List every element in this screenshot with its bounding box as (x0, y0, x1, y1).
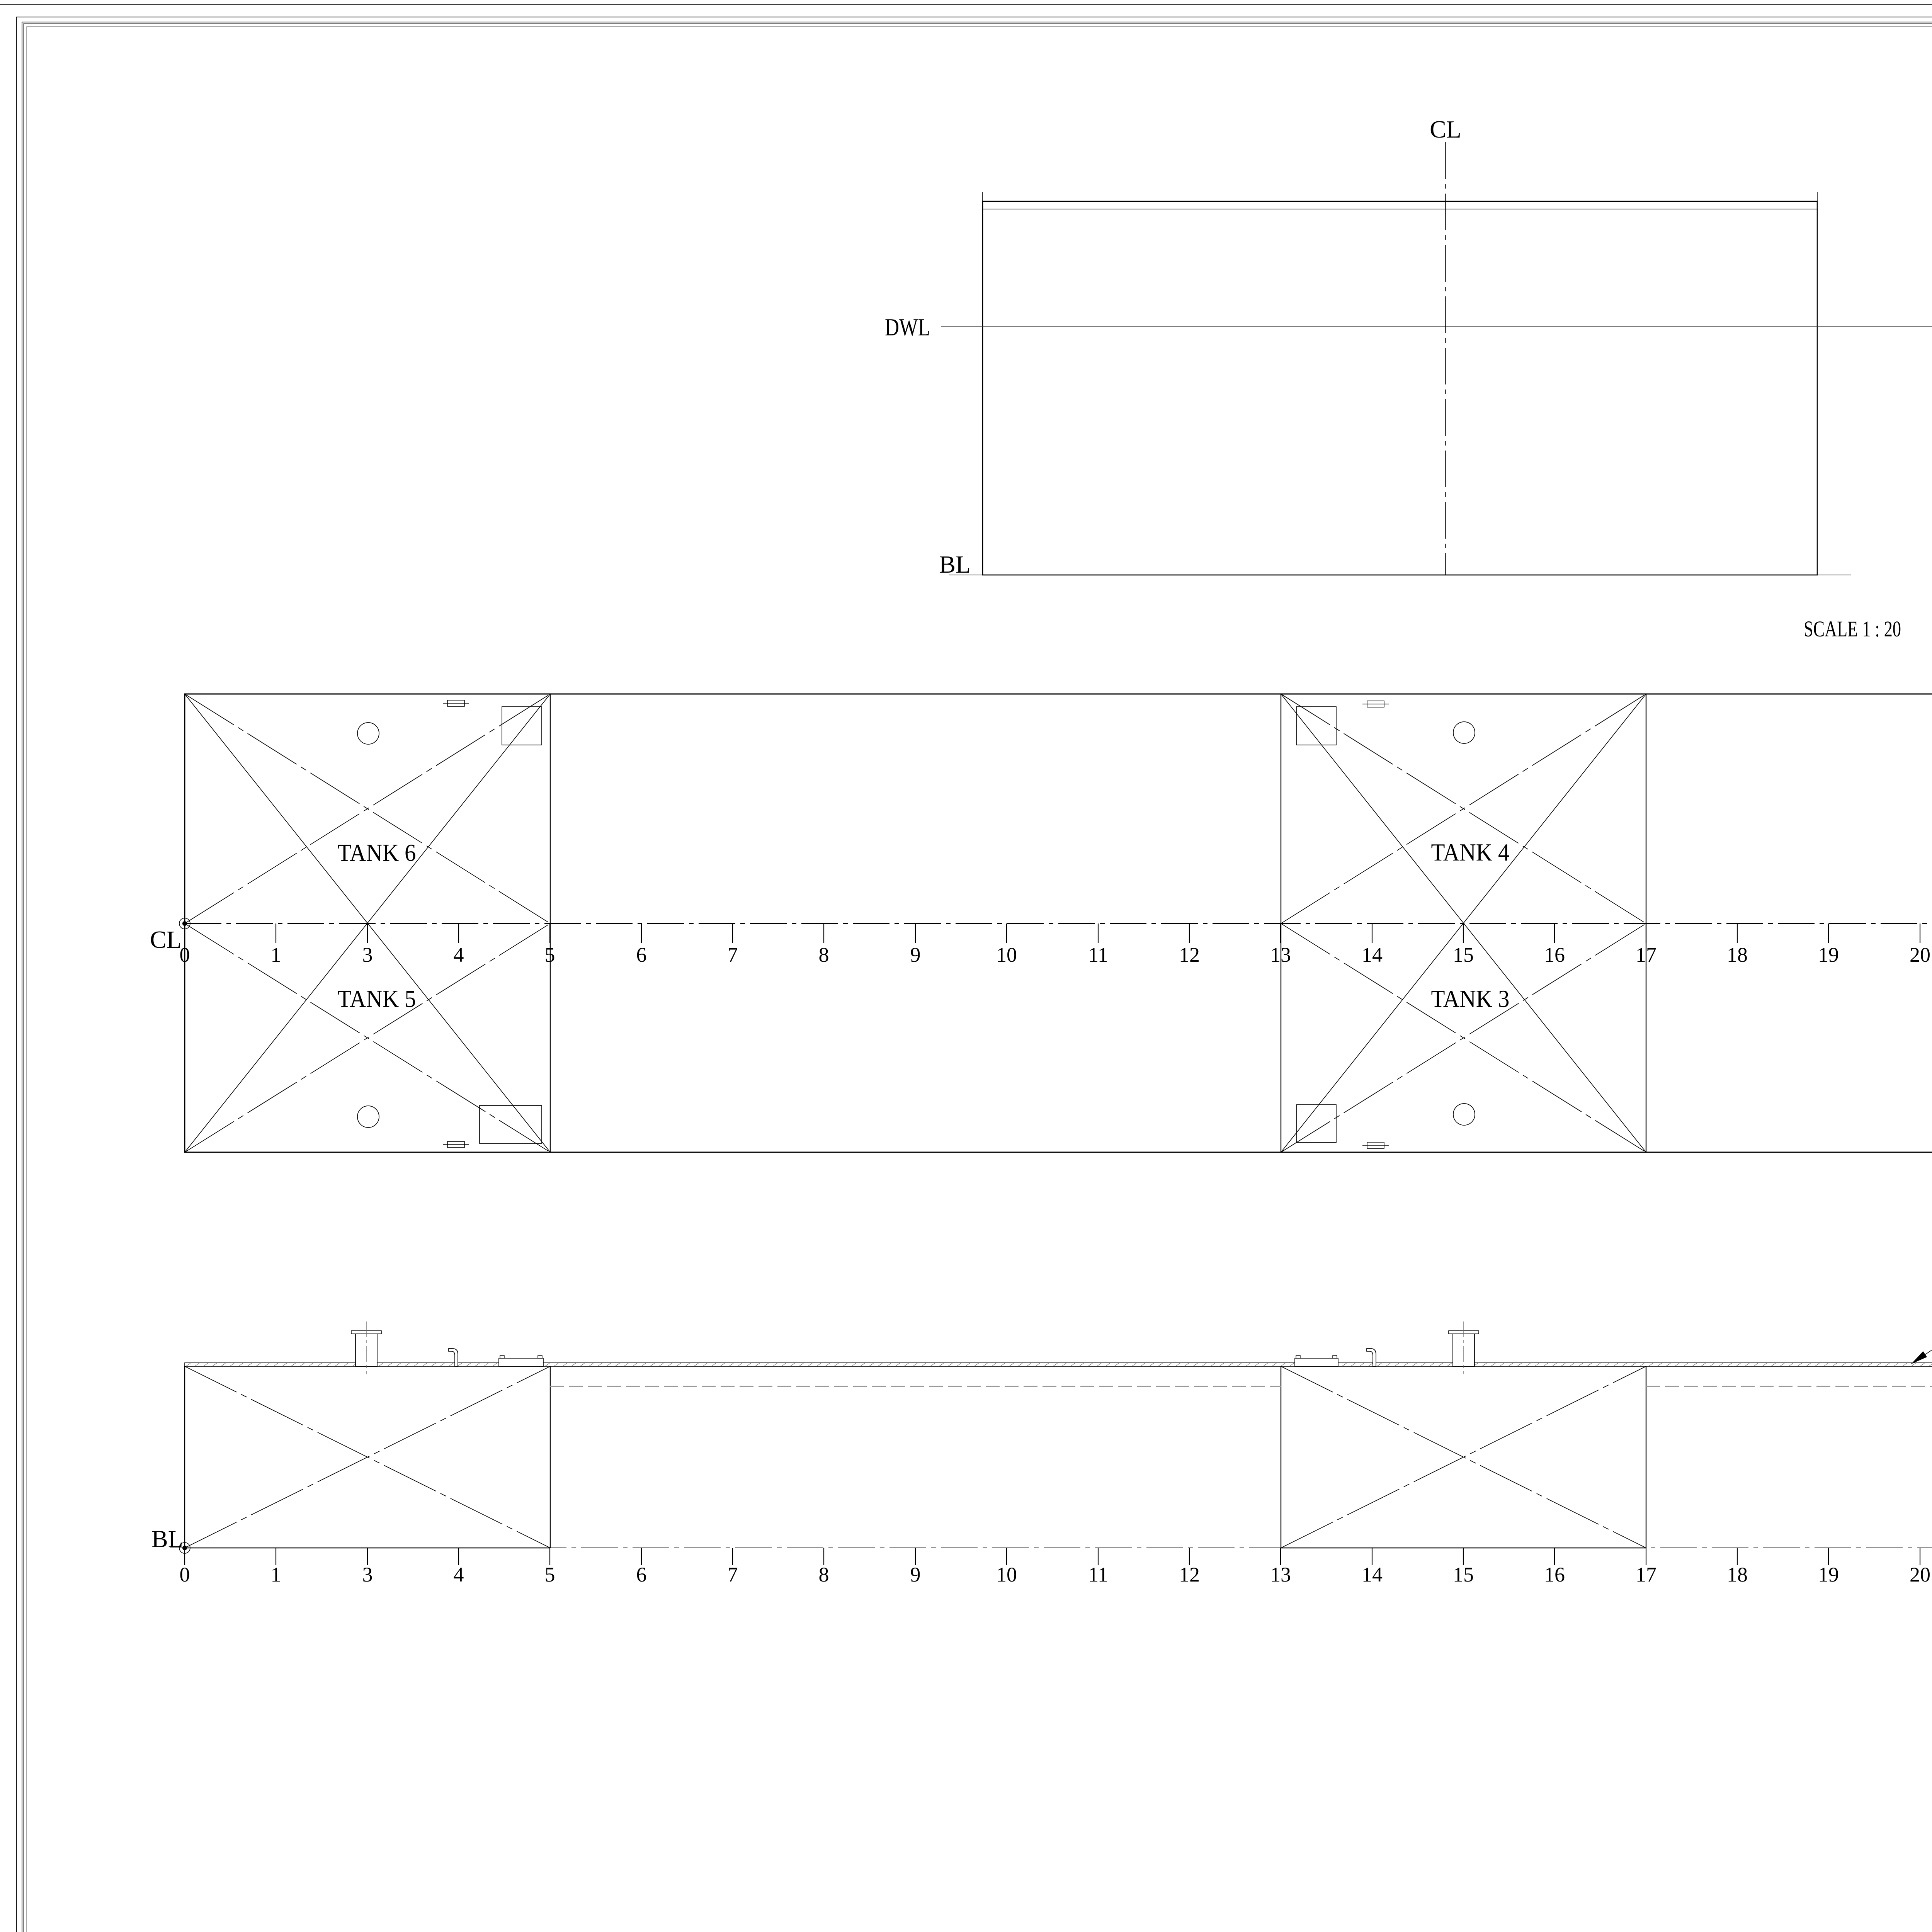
svg-text:20: 20 (1910, 943, 1930, 966)
svg-text:BL: BL (939, 551, 971, 578)
svg-text:18: 18 (1727, 1563, 1748, 1586)
svg-text:8: 8 (819, 943, 829, 966)
svg-text:1: 1 (271, 1563, 281, 1586)
svg-text:14: 14 (1362, 1563, 1383, 1586)
svg-text:17: 17 (1636, 943, 1656, 966)
svg-text:8: 8 (819, 1563, 829, 1586)
svg-text:9: 9 (910, 943, 921, 966)
svg-text:0: 0 (180, 1563, 190, 1586)
svg-text:18: 18 (1727, 943, 1748, 966)
svg-text:3: 3 (362, 943, 373, 966)
svg-text:BL: BL (151, 1525, 183, 1553)
svg-text:SCALE 1 : 20: SCALE 1 : 20 (1804, 616, 1901, 641)
svg-text:1: 1 (271, 943, 281, 966)
svg-text:CL: CL (1430, 116, 1461, 143)
svg-text:CL: CL (150, 926, 182, 953)
svg-text:6: 6 (636, 1563, 647, 1586)
svg-text:15: 15 (1453, 943, 1474, 966)
svg-text:6: 6 (636, 943, 647, 966)
svg-text:TANK 5: TANK 5 (338, 985, 416, 1012)
svg-text:13: 13 (1270, 1563, 1291, 1586)
svg-text:4: 4 (454, 943, 464, 966)
svg-text:12: 12 (1179, 1563, 1200, 1586)
svg-text:11: 11 (1088, 1563, 1108, 1586)
svg-text:7: 7 (728, 943, 738, 966)
svg-text:5: 5 (545, 1563, 555, 1586)
svg-text:16: 16 (1544, 943, 1565, 966)
svg-text:11: 11 (1088, 943, 1108, 966)
svg-text:19: 19 (1818, 1563, 1839, 1586)
svg-text:DWL: DWL (885, 313, 930, 341)
svg-text:5: 5 (545, 943, 555, 966)
svg-text:19: 19 (1818, 943, 1839, 966)
svg-text:12: 12 (1179, 943, 1200, 966)
svg-text:10: 10 (996, 1563, 1017, 1586)
svg-text:7: 7 (728, 1563, 738, 1586)
svg-text:4: 4 (454, 1563, 464, 1586)
svg-text:TANK 3: TANK 3 (1431, 985, 1510, 1012)
svg-text:15: 15 (1453, 1563, 1474, 1586)
svg-text:TANK 4: TANK 4 (1431, 838, 1510, 866)
svg-text:10: 10 (996, 943, 1017, 966)
svg-text:14: 14 (1362, 943, 1383, 966)
svg-text:0: 0 (180, 943, 190, 966)
svg-text:20: 20 (1910, 1563, 1930, 1586)
svg-text:9: 9 (910, 1563, 921, 1586)
svg-text:16: 16 (1544, 1563, 1565, 1586)
svg-text:3: 3 (362, 1563, 373, 1586)
svg-text:TANK 6: TANK 6 (338, 839, 416, 866)
svg-text:17: 17 (1636, 1563, 1656, 1586)
svg-text:13: 13 (1270, 943, 1291, 966)
